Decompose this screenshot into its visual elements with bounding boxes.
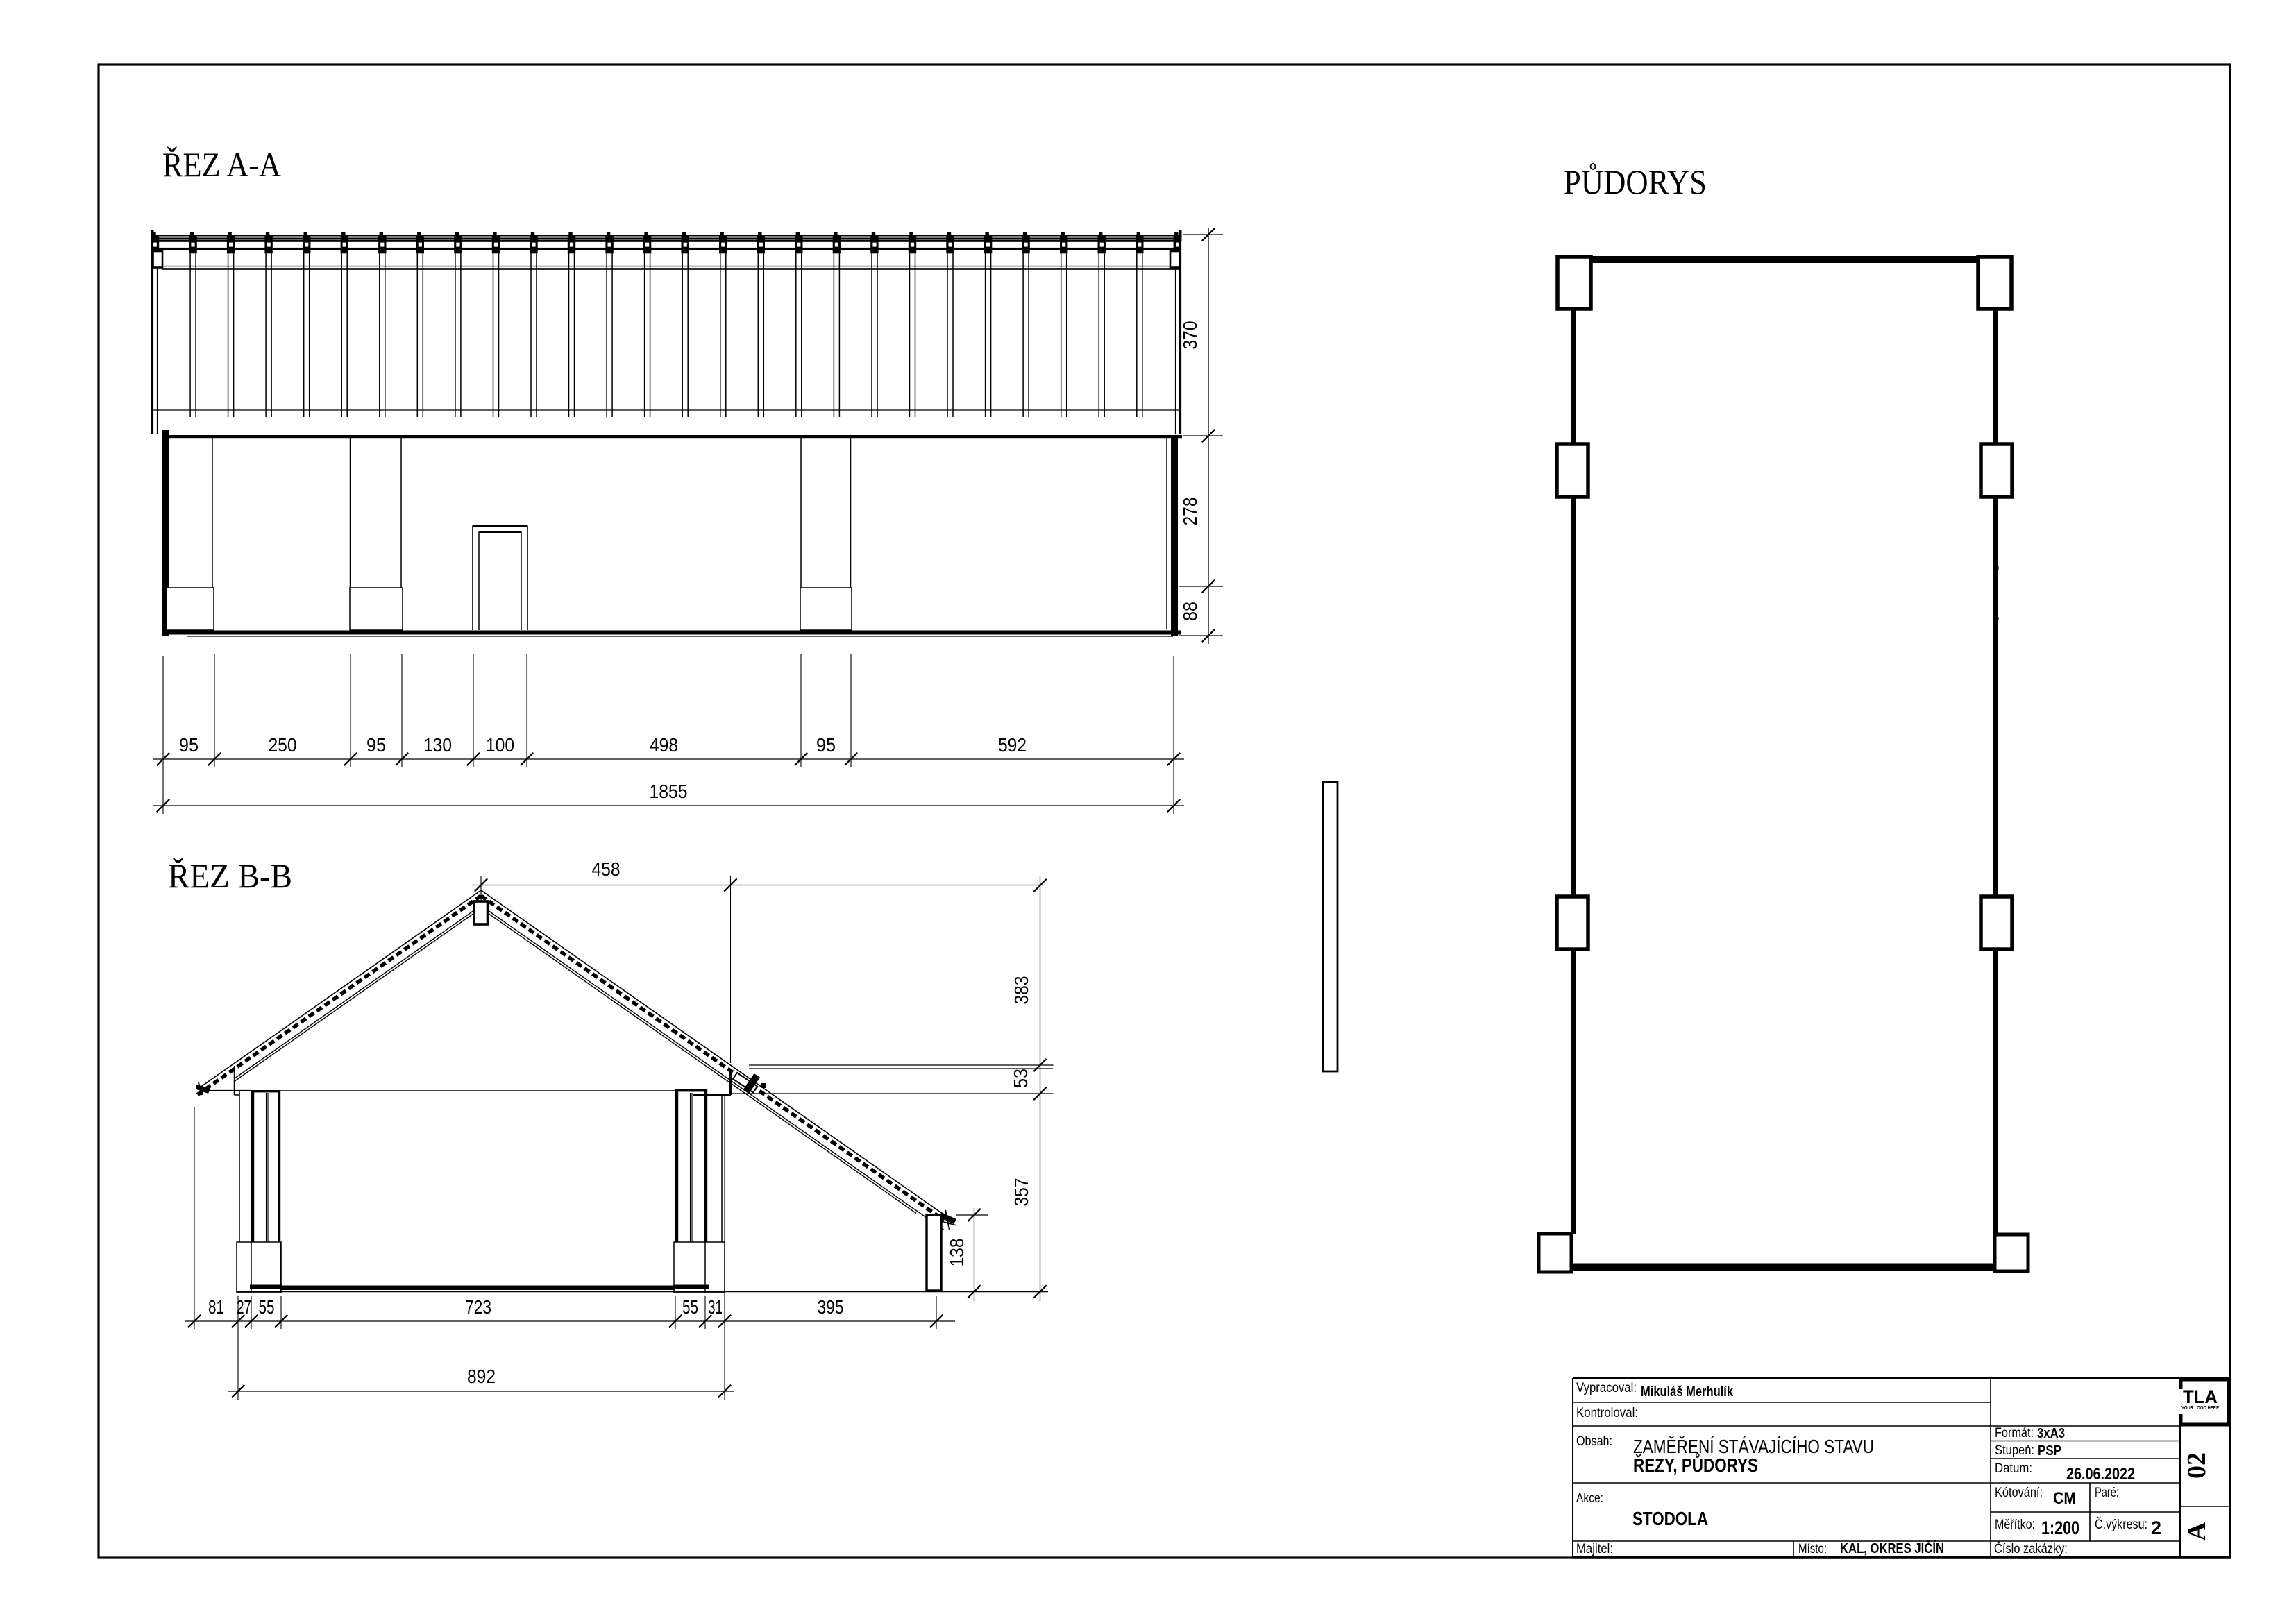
svg-text:2: 2 xyxy=(2151,1518,2161,1538)
svg-text:100: 100 xyxy=(486,734,514,756)
svg-text:27: 27 xyxy=(237,1296,251,1318)
svg-text:Kontroloval:: Kontroloval: xyxy=(1576,1406,1638,1420)
svg-text:395: 395 xyxy=(818,1296,844,1318)
svg-text:Místo:: Místo: xyxy=(1798,1542,1827,1556)
svg-text:1:200: 1:200 xyxy=(2041,1518,2079,1538)
svg-text:Č.výkresu:: Č.výkresu: xyxy=(2095,1517,2147,1532)
svg-text:Paré:: Paré: xyxy=(2095,1486,2119,1500)
svg-text:723: 723 xyxy=(465,1296,491,1318)
svg-text:PŮDORYS: PŮDORYS xyxy=(1564,162,1707,201)
svg-text:95: 95 xyxy=(366,734,386,756)
svg-text:ŘEZ B-B: ŘEZ B-B xyxy=(168,856,292,895)
svg-text:Vypracoval:: Vypracoval: xyxy=(1576,1381,1637,1395)
svg-text:892: 892 xyxy=(467,1366,496,1387)
svg-text:1855: 1855 xyxy=(650,781,688,802)
svg-text:55: 55 xyxy=(682,1296,698,1318)
svg-text:Datum:: Datum: xyxy=(1995,1461,2032,1476)
svg-text:370: 370 xyxy=(1179,321,1201,350)
svg-text:357: 357 xyxy=(1011,1178,1032,1207)
svg-text:95: 95 xyxy=(816,734,836,756)
svg-text:STODOLA: STODOLA xyxy=(1632,1508,1708,1529)
svg-text:KAL, OKRES JIČÍN: KAL, OKRES JIČÍN xyxy=(1840,1540,1944,1556)
svg-text:55: 55 xyxy=(259,1296,275,1318)
svg-text:A: A xyxy=(2182,1522,2211,1541)
svg-text:3xA3: 3xA3 xyxy=(2037,1426,2065,1441)
svg-text:02: 02 xyxy=(2182,1452,2211,1479)
svg-text:Majitel:: Majitel: xyxy=(1576,1542,1613,1556)
svg-text:383: 383 xyxy=(1011,976,1032,1005)
svg-text:Obsah:: Obsah: xyxy=(1576,1434,1612,1449)
svg-text:498: 498 xyxy=(650,734,678,756)
svg-text:Akce:: Akce: xyxy=(1576,1491,1603,1506)
svg-text:81: 81 xyxy=(208,1296,224,1318)
svg-text:88: 88 xyxy=(1179,602,1201,621)
svg-text:Formát:: Formát: xyxy=(1995,1426,2034,1441)
svg-text:138: 138 xyxy=(946,1239,968,1267)
svg-text:YOUR LOGO HERE: YOUR LOGO HERE xyxy=(2181,1404,2219,1411)
svg-text:53: 53 xyxy=(1010,1069,1031,1088)
svg-text:592: 592 xyxy=(998,734,1027,756)
svg-text:Měřítko:: Měřítko: xyxy=(1995,1518,2035,1532)
svg-text:ŘEZY, PŮDORYS: ŘEZY, PŮDORYS xyxy=(1633,1453,1758,1476)
svg-text:130: 130 xyxy=(423,734,452,756)
svg-text:250: 250 xyxy=(269,734,297,756)
svg-text:95: 95 xyxy=(179,734,199,756)
svg-text:Kótování:: Kótování: xyxy=(1995,1486,2043,1500)
svg-text:CM: CM xyxy=(2053,1489,2076,1508)
svg-text:31: 31 xyxy=(708,1296,723,1318)
svg-text:Číslo zakázky:: Číslo zakázky: xyxy=(1994,1541,2068,1556)
svg-text:278: 278 xyxy=(1179,498,1201,526)
svg-text:ŘEZ A-A: ŘEZ A-A xyxy=(162,145,281,184)
svg-text:458: 458 xyxy=(592,858,621,880)
svg-text:26.06.2022: 26.06.2022 xyxy=(2066,1465,2135,1484)
svg-text:Stupeň:: Stupeň: xyxy=(1995,1443,2034,1458)
svg-text:PSP: PSP xyxy=(2038,1443,2061,1459)
svg-text:Mikuláš Merhulík: Mikuláš Merhulík xyxy=(1641,1384,1734,1400)
